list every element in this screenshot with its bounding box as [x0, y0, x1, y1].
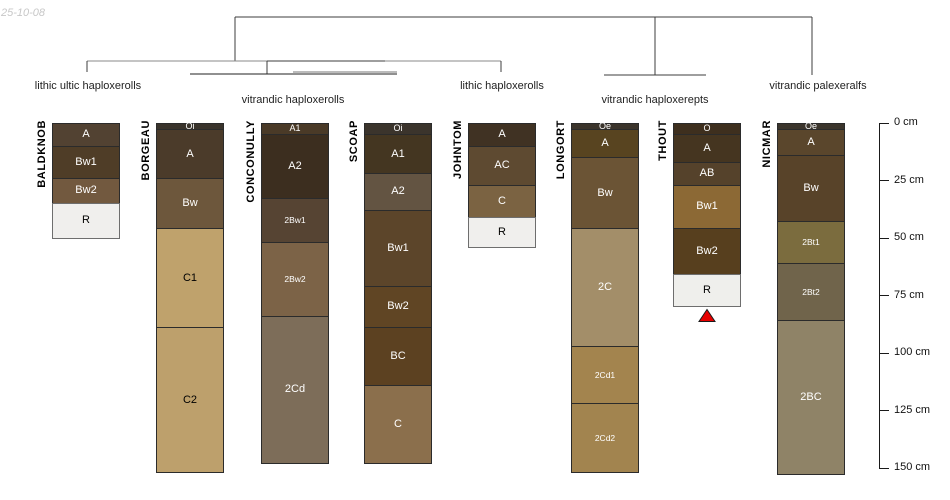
horizon-rect: C [468, 185, 536, 218]
horizon-label: 2Cd2 [595, 434, 615, 443]
depth-tick [879, 123, 889, 124]
horizon-label: 2Bt1 [802, 238, 820, 247]
horizon-label: C1 [183, 273, 197, 284]
horizon-label: Bw1 [75, 157, 96, 168]
horizon-label: 2Bt2 [802, 288, 820, 297]
horizon-rect: BC [364, 327, 432, 386]
profile-name-label: LONGORT [554, 120, 568, 179]
horizon-rect: 2Cd2 [571, 403, 639, 473]
dendrogram [0, 0, 950, 120]
horizon-label: A1 [289, 124, 300, 133]
horizon-rect: 2Bw2 [261, 242, 329, 317]
horizon-label: 2Bw2 [284, 275, 305, 284]
horizon-rect: AC [468, 146, 536, 186]
horizon-rect: A [673, 134, 741, 163]
horizon-rect: Bw1 [52, 146, 120, 179]
horizon-rect: 2Bt1 [777, 221, 845, 263]
horizon-label: A [601, 138, 608, 149]
depth-tick-label: 150 cm [894, 461, 930, 473]
taxon-label-vitrandic-haploxerolls: vitrandic haploxerolls [242, 94, 345, 106]
horizon-label: A [82, 129, 89, 140]
taxon-label-vitrandic-haploxerepts: vitrandic haploxerepts [601, 94, 708, 106]
horizon-label: Bw2 [75, 185, 96, 196]
taxon-label-lithic-ultic-haploxerolls: lithic ultic haploxerolls [35, 80, 141, 92]
horizon-rect: 2C [571, 228, 639, 346]
horizon-label: R [498, 227, 506, 238]
horizon-label: 2C [598, 282, 612, 293]
horizon-rect: R [468, 217, 536, 248]
horizon-label: 2Cd [285, 384, 305, 395]
horizon-rect: A [777, 129, 845, 155]
profile-name-label: BALDKNOB [35, 120, 49, 188]
horizon-label: Bw [597, 188, 612, 199]
horizon-label: C [394, 419, 402, 430]
horizon-rect: A [468, 123, 536, 147]
horizon-label: Bw [182, 198, 197, 209]
red-triangle-marker-icon [699, 310, 715, 322]
horizon-rect: 2Bt2 [777, 263, 845, 322]
horizon-rect: R [673, 274, 741, 307]
horizon-label: 2BC [800, 392, 821, 403]
horizon-label: A2 [391, 186, 404, 197]
horizon-label: A1 [391, 149, 404, 160]
horizon-label: A2 [288, 161, 301, 172]
horizon-label: AB [700, 168, 715, 179]
horizon-rect: Bw [571, 157, 639, 229]
horizon-rect: Bw1 [364, 210, 432, 287]
depth-tick [879, 295, 889, 296]
horizon-rect: 2Cd1 [571, 346, 639, 405]
horizon-label: O [703, 124, 710, 133]
horizon-rect: Bw [777, 155, 845, 223]
horizon-rect: A2 [364, 173, 432, 211]
horizon-rect: C2 [156, 327, 224, 473]
depth-tick-label: 0 cm [894, 116, 918, 128]
horizon-rect: Bw1 [673, 185, 741, 230]
depth-tick [879, 180, 889, 181]
profile-name-label: SCOAP [347, 120, 361, 162]
depth-tick-label: 100 cm [894, 346, 930, 358]
horizon-label: Bw2 [696, 246, 717, 257]
horizon-label: A [807, 137, 814, 148]
horizon-rect: 2Bw1 [261, 198, 329, 243]
depth-tick [879, 238, 889, 239]
horizon-rect: 2BC [777, 320, 845, 475]
horizon-rect: R [52, 203, 120, 239]
depth-tick-label: 50 cm [894, 231, 924, 243]
horizon-label: Bw [803, 183, 818, 194]
depth-tick [879, 468, 889, 469]
horizon-label: Bw1 [696, 201, 717, 212]
horizon-label: Bw1 [387, 243, 408, 254]
horizon-rect: A [156, 129, 224, 178]
profile-name-label: JOHNTOM [451, 120, 465, 179]
horizon-label: BC [390, 351, 405, 362]
horizon-label: A [186, 149, 193, 160]
depth-tick [879, 410, 889, 411]
horizon-rect: C [364, 385, 432, 464]
horizon-label: A [498, 129, 505, 140]
horizon-rect: C1 [156, 228, 224, 328]
horizon-label: 2Cd1 [595, 371, 615, 380]
horizon-label: C2 [183, 395, 197, 406]
horizon-rect: A [571, 129, 639, 158]
plot-canvas: 25-10-08 lithic ultic haploxerollsvitran… [0, 0, 950, 500]
horizon-label: R [82, 215, 90, 226]
depth-tick-label: 125 cm [894, 404, 930, 416]
horizon-rect: Bw2 [52, 178, 120, 204]
horizon-label: 2Bw1 [284, 216, 305, 225]
horizon-label: C [498, 196, 506, 207]
horizon-rect: Bw2 [364, 286, 432, 328]
profile-name-label: THOUT [656, 120, 670, 161]
horizon-label: A [703, 143, 710, 154]
horizon-rect: 2Cd [261, 316, 329, 464]
profile-name-label: NICMAR [760, 120, 774, 168]
horizon-label: AC [494, 160, 509, 171]
horizon-rect: A2 [261, 134, 329, 199]
date-stamp: 25-10-08 [1, 7, 45, 19]
horizon-label: Bw2 [387, 301, 408, 312]
horizon-rect: A [52, 123, 120, 147]
depth-tick-label: 25 cm [894, 174, 924, 186]
horizon-rect: Bw [156, 178, 224, 230]
depth-tick-label: 75 cm [894, 289, 924, 301]
horizon-rect: AB [673, 162, 741, 186]
profile-name-label: CONCONULLY [244, 120, 258, 203]
taxon-label-lithic-haploxerolls: lithic haploxerolls [460, 80, 544, 92]
horizon-label: R [703, 285, 711, 296]
depth-tick [879, 353, 889, 354]
profile-name-label: BORGEAU [139, 120, 153, 180]
horizon-rect: A1 [364, 134, 432, 174]
taxon-label-vitrandic-palexeralfs: vitrandic palexeralfs [769, 80, 866, 92]
horizon-rect: Bw2 [673, 228, 741, 275]
horizon-label: Oi [394, 124, 403, 133]
